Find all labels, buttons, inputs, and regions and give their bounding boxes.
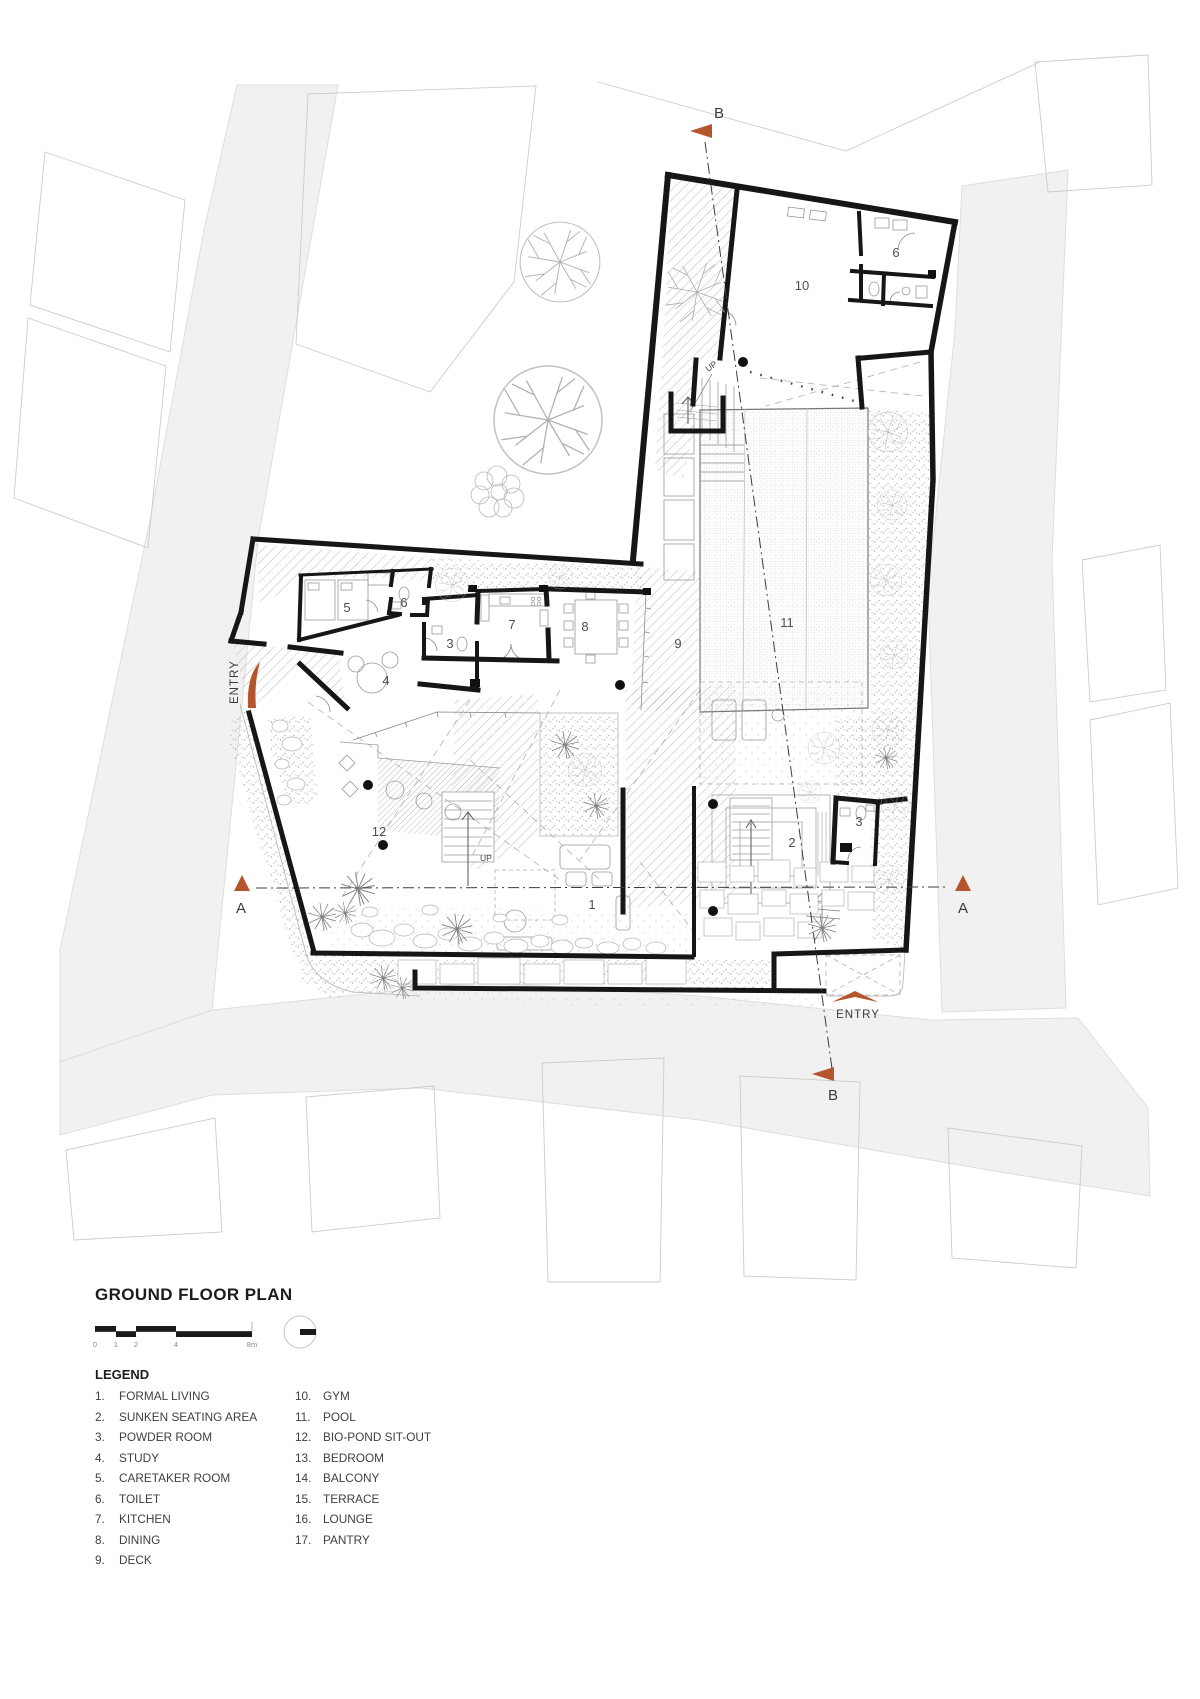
legend-item-deck: 9.DECK [95,1550,290,1571]
legend-label: KITCHEN [119,1509,171,1530]
legend-label: POOL [323,1407,356,1428]
room-label-10: 10 [795,278,809,293]
room-label-12: 12 [372,824,386,839]
legend-item-bedroom: 13.BEDROOM [295,1448,495,1469]
legend-num: 7. [95,1509,119,1530]
scale-tick-2: 2 [134,1340,138,1349]
scale-tick-8m: 8m [247,1340,257,1349]
section-arrow-b-top [690,124,712,138]
up-label-gym-stair: UP [703,358,719,373]
legend-column-2: 10.GYM 11.POOL 12.BIO-POND SIT-OUT 13.BE… [295,1386,495,1550]
legend-num: 14. [295,1468,323,1489]
legend-label: STUDY [119,1448,159,1469]
legend-label: PANTRY [323,1530,370,1551]
room-label-6-top: 6 [892,245,899,260]
scale-tick-1: 1 [114,1340,118,1349]
legend-label: DINING [119,1530,160,1551]
room-label-1: 1 [588,897,595,912]
entry-label-west: ENTRY [229,660,241,704]
legend-num: 6. [95,1489,119,1510]
section-label-a-right: A [958,900,968,917]
room-label-8: 8 [581,619,588,634]
legend-item-sunken-seating-area: 2.SUNKEN SEATING AREA [95,1407,290,1428]
section-label-a-left: A [236,900,246,917]
legend-item-terrace: 15.TERRACE [295,1489,495,1510]
legend-item-lounge: 16.LOUNGE [295,1509,495,1530]
room-label-3-mid: 3 [446,636,453,651]
legend-item-caretaker-room: 5.CARETAKER ROOM [95,1468,290,1489]
ground-floor-plan-sheet: 1 2 3 3 4 5 6 6 7 8 9 10 11 12 B B A A E… [0,0,1200,1699]
entry-label-south: ENTRY [836,1009,880,1021]
room-label-4: 4 [382,673,389,688]
road-east [928,170,1068,1012]
entry-arrow-south [832,991,878,1002]
legend-item-powder-room: 3.POWDER ROOM [95,1427,290,1448]
legend-column-1: 1.FORMAL LIVING 2.SUNKEN SEATING AREA 3.… [95,1386,290,1571]
legend-num: 2. [95,1407,119,1428]
legend-item-pantry: 17.PANTRY [295,1530,495,1551]
legend-num: 5. [95,1468,119,1489]
legend-label: SUNKEN SEATING AREA [119,1407,257,1428]
legend-label: GYM [323,1386,350,1407]
legend-num: 15. [295,1489,323,1510]
legend-item-balcony: 14.BALCONY [295,1468,495,1489]
room-label-6-mid: 6 [400,595,407,610]
legend-item-study: 4.STUDY [95,1448,290,1469]
legend-num: 12. [295,1427,323,1448]
legend-label: LOUNGE [323,1509,373,1530]
legend-num: 4. [95,1448,119,1469]
legend-num: 16. [295,1509,323,1530]
legend-item-dining: 8.DINING [95,1530,290,1551]
legend-num: 8. [95,1530,119,1551]
legend-label: CARETAKER ROOM [119,1468,230,1489]
legend-label: TOILET [119,1489,160,1510]
scale-bar: 0 1 2 4 8m [93,1322,257,1349]
road-south [60,982,1150,1196]
gym-glass-facade [750,372,858,402]
legend-label: BIO-POND SIT-OUT [323,1427,431,1448]
room-label-7: 7 [508,617,515,632]
legend-label: BALCONY [323,1468,379,1489]
roads [60,85,1150,1196]
legend-heading: LEGEND [95,1367,149,1382]
legend-label: DECK [119,1550,152,1571]
legend-num: 11. [295,1407,323,1428]
legend-item-gym: 10.GYM [295,1386,495,1407]
north-indicator [284,1316,316,1348]
scale-tick-0: 0 [93,1340,97,1349]
legend-label: FORMAL LIVING [119,1386,210,1407]
section-label-b-top: B [714,105,724,122]
legend-item-formal-living: 1.FORMAL LIVING [95,1386,290,1407]
drawing-title: GROUND FLOOR PLAN [95,1285,293,1305]
room-label-5: 5 [343,600,350,615]
up-label-main-stair: UP [480,853,492,863]
pool [700,408,868,712]
legend-item-toilet: 6.TOILET [95,1489,290,1510]
legend-num: 13. [295,1448,323,1469]
scale-tick-4: 4 [174,1340,178,1349]
legend-num: 1. [95,1386,119,1407]
legend-num: 9. [95,1550,119,1571]
legend-num: 3. [95,1427,119,1448]
room-label-9: 9 [674,636,681,651]
legend-num: 17. [295,1530,323,1551]
section-label-b-bottom: B [828,1087,838,1104]
section-arrow-a-left [234,875,250,891]
room-label-2: 2 [788,835,795,850]
room-label-3-south: 3 [855,814,862,829]
legend-item-kitchen: 7.KITCHEN [95,1509,290,1530]
legend-label: BEDROOM [323,1448,384,1469]
room-label-11: 11 [780,615,794,630]
legend-item-bio-pond-sit-out: 12.BIO-POND SIT-OUT [295,1427,495,1448]
north-needle [300,1329,316,1335]
legend-label: POWDER ROOM [119,1427,212,1448]
legend-label: TERRACE [323,1489,379,1510]
legend-num: 10. [295,1386,323,1407]
legend-item-pool: 11.POOL [295,1407,495,1428]
